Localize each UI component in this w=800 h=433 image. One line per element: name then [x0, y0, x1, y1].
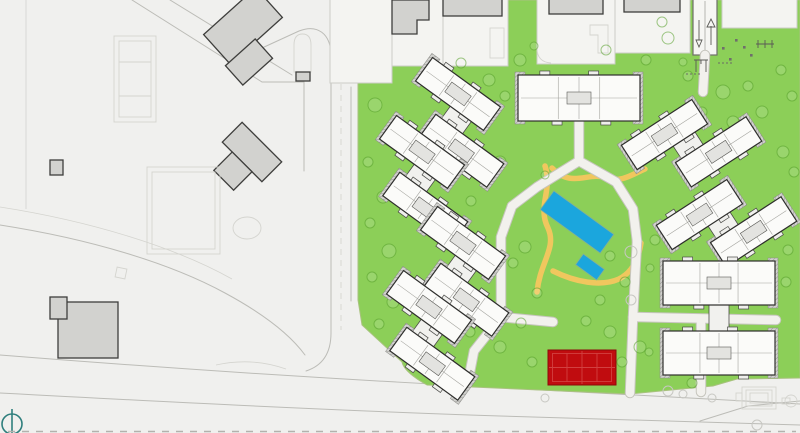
- tree-icon: [650, 235, 660, 245]
- tree-icon: [620, 277, 630, 287]
- tree-icon: [367, 272, 377, 282]
- tree-icon: [519, 241, 531, 253]
- tree-icon: [532, 288, 542, 298]
- tree-icon: [756, 106, 768, 118]
- tree-icon: [662, 32, 674, 44]
- tree-icon: [645, 348, 653, 356]
- tree-icon: [604, 326, 616, 338]
- entry-ramp: [693, 0, 717, 55]
- neighbour-building: [624, 0, 680, 12]
- tree-icon: [789, 167, 799, 177]
- tree-icon: [581, 316, 591, 326]
- residential-building-block-1: [515, 71, 643, 125]
- tree-icon: [500, 91, 510, 101]
- context-building-small: [50, 160, 63, 175]
- sports-court: [548, 350, 616, 385]
- tree-icon: [483, 74, 495, 86]
- play-dot: [750, 54, 753, 57]
- tree-icon: [368, 98, 382, 112]
- tree-icon: [679, 58, 687, 66]
- tree-icon: [687, 378, 697, 388]
- tree-icon: [365, 218, 375, 228]
- site-plan-canvas: [0, 0, 800, 433]
- tree-icon: [605, 251, 615, 261]
- tree-icon: [781, 277, 791, 287]
- tree-icon: [601, 45, 611, 55]
- tree-icon: [595, 295, 605, 305]
- tree-icon: [743, 81, 753, 91]
- tree-icon: [514, 54, 526, 66]
- tree-icon: [716, 85, 730, 99]
- neighbour-building: [443, 0, 502, 16]
- play-dot: [735, 39, 738, 42]
- neighbour-building: [549, 0, 603, 14]
- tree-icon: [641, 55, 651, 65]
- play-dot: [729, 58, 732, 61]
- tree-icon: [466, 196, 476, 206]
- tree-icon: [777, 146, 789, 158]
- tree-icon: [634, 341, 646, 353]
- tree-icon: [787, 91, 797, 101]
- play-dot: [722, 47, 725, 50]
- plot: [330, 0, 392, 83]
- play-dot: [743, 46, 746, 49]
- tree-icon: [657, 17, 667, 27]
- tree-icon: [783, 245, 793, 255]
- tree-icon: [494, 341, 506, 353]
- tree-icon: [508, 258, 518, 268]
- tree-icon: [617, 357, 627, 367]
- tree-icon: [516, 318, 526, 328]
- tree-icon: [456, 58, 466, 68]
- tree-icon: [363, 157, 373, 167]
- tree-icon: [374, 319, 384, 329]
- tree-icon: [776, 65, 786, 75]
- tree-icon: [683, 71, 693, 81]
- tree-icon: [527, 357, 537, 367]
- walkway: [703, 55, 705, 92]
- site-plan: [0, 0, 800, 433]
- context-building-small: [296, 72, 310, 81]
- tree-icon: [646, 264, 654, 272]
- plot: [722, 0, 797, 28]
- tree-icon: [382, 244, 396, 258]
- context-building-sw: [50, 297, 118, 358]
- tree-icon: [530, 42, 538, 50]
- tree-icon: [541, 171, 549, 179]
